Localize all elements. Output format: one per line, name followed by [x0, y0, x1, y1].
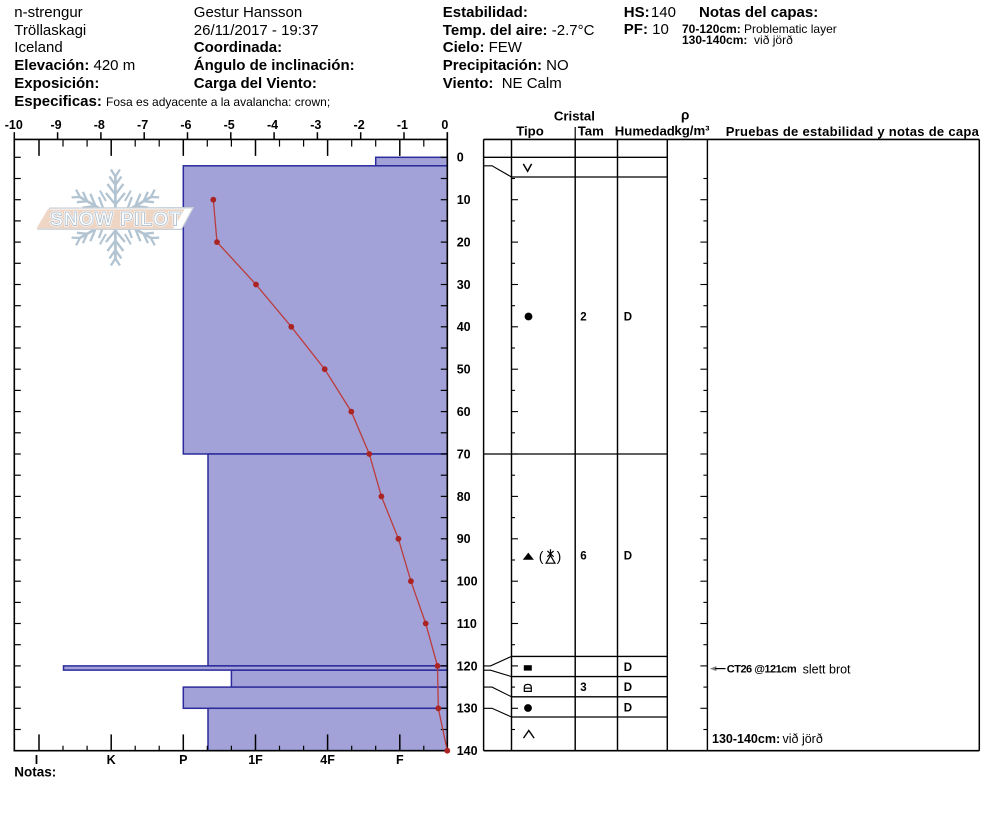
svg-text:-6: -6: [180, 118, 191, 132]
svg-text:D: D: [624, 662, 632, 674]
svg-text:P: P: [179, 753, 187, 767]
svg-text:120: 120: [457, 659, 478, 673]
svg-text:Tipo: Tipo: [516, 123, 544, 138]
svg-text:2: 2: [580, 312, 586, 324]
svg-text:slett brot: slett brot: [803, 662, 851, 676]
svg-text:6: 6: [580, 551, 586, 563]
svg-text:140: 140: [457, 744, 478, 758]
svg-text:0: 0: [457, 151, 464, 165]
svg-text:20: 20: [457, 236, 471, 250]
svg-text:ρ: ρ: [681, 108, 689, 123]
svg-text:(: (: [539, 548, 544, 564]
svg-text:10: 10: [457, 193, 471, 207]
svg-text:D: D: [624, 551, 632, 563]
svg-text:130-140cm:við jörð: 130-140cm:við jörð: [712, 732, 823, 746]
svg-text:-8: -8: [94, 118, 105, 132]
svg-text:1F: 1F: [248, 753, 263, 767]
svg-text:K: K: [107, 753, 116, 767]
svg-text:130: 130: [457, 702, 478, 716]
svg-text:Cristal: Cristal: [554, 109, 595, 124]
svg-text:kg/m³: kg/m³: [674, 123, 710, 138]
svg-text:-5: -5: [224, 118, 235, 132]
svg-text:70: 70: [457, 447, 471, 461]
svg-text:90: 90: [457, 532, 471, 546]
svg-text:-10: -10: [5, 118, 23, 132]
svg-text:SNOW PILOT: SNOW PILOT: [50, 208, 181, 230]
svg-text:50: 50: [457, 363, 471, 377]
svg-text:D: D: [624, 312, 632, 324]
svg-text:0: 0: [441, 118, 448, 132]
svg-text:110: 110: [457, 617, 477, 631]
svg-text:30: 30: [457, 278, 471, 292]
svg-text:-2: -2: [354, 118, 365, 132]
svg-text:CT26 @121cm: CT26 @121cm: [727, 663, 797, 675]
svg-text:-4: -4: [267, 118, 278, 132]
svg-text:Notas:: Notas:: [14, 765, 56, 780]
svg-text:60: 60: [457, 405, 471, 419]
svg-text:D: D: [624, 682, 632, 694]
svg-text:): ): [557, 548, 562, 564]
svg-text:Humedad: Humedad: [615, 123, 675, 138]
svg-text:-7: -7: [137, 118, 148, 132]
svg-text:-3: -3: [310, 118, 321, 132]
svg-text:80: 80: [457, 490, 471, 504]
svg-text:-9: -9: [50, 118, 61, 132]
svg-text:Tam: Tam: [578, 123, 604, 138]
svg-text:100: 100: [457, 575, 478, 589]
svg-text:D: D: [624, 703, 632, 715]
svg-text:3: 3: [580, 682, 586, 694]
svg-text:-1: -1: [397, 118, 408, 132]
svg-text:F: F: [396, 753, 404, 767]
svg-text:4F: 4F: [320, 753, 335, 767]
svg-text:Pruebas de estabilidad y notas: Pruebas de estabilidad y notas de capa: [726, 124, 980, 139]
svg-text:40: 40: [457, 320, 471, 334]
